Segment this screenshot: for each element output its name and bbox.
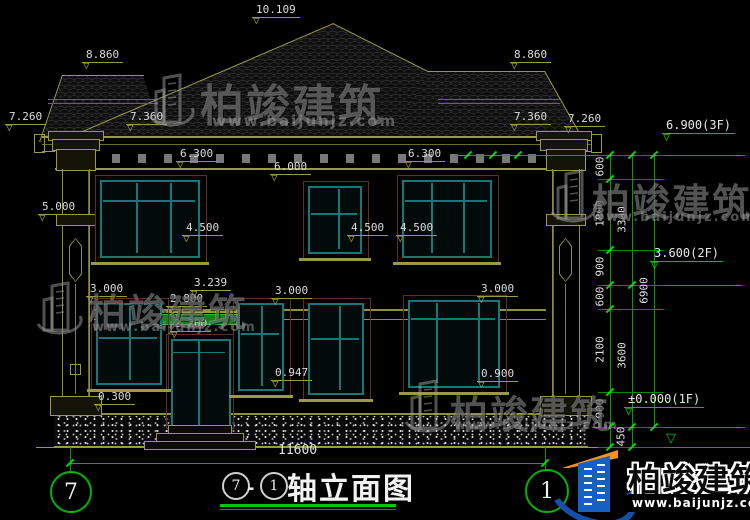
chain-dimension: 900 [594, 387, 607, 431]
level-label: 3.600(2F)▽ [650, 246, 723, 262]
brand-logo: 柏竣建筑 www.baijunjz.com [540, 448, 750, 520]
elevation-triangle-icon: ▽ [87, 294, 94, 305]
elevation-triangle-icon: ▽ [127, 122, 134, 133]
window-2f-right-transom [405, 200, 487, 202]
title-axis-bubble-from: 7 [222, 472, 250, 500]
left-wing-fascia-2 [48, 103, 158, 104]
elevation-marker: 0.947▽ [271, 366, 312, 381]
elevation-triangle-icon: ▽ [272, 296, 279, 307]
eave-end-left [34, 134, 45, 153]
elevation-marker: 3.000▽ [477, 282, 518, 297]
door-center-mullion [198, 341, 200, 425]
window-2f-left-sill [91, 262, 209, 265]
window-1f-1-rail [99, 337, 157, 339]
elevation-marker: 3.000▽ [271, 284, 312, 299]
window-2f-center-rail [311, 213, 357, 215]
pilaster-left-downspout [75, 284, 76, 394]
elevation-triangle-icon: ▽ [478, 294, 485, 305]
elevation-marker: 6.300▽ [404, 147, 445, 162]
window-1f-2-sill [229, 395, 293, 398]
elevation-triangle-icon: ▽ [511, 60, 518, 71]
elevation-marker: 0.900▽ [477, 367, 518, 382]
elevation-triangle-icon: ▽ [271, 172, 278, 183]
elevation-triangle-icon: ▽ [95, 402, 102, 413]
pilaster-left-band [56, 214, 96, 226]
elevation-triangle-icon: ▽ [478, 379, 485, 390]
elevation-triangle-icon: ▽ [565, 124, 572, 135]
pilaster-left-ornament [69, 238, 82, 282]
chain-dimension: 3300 [616, 198, 629, 242]
roof-ridge-right [428, 71, 545, 72]
window-2f-right-sill [393, 262, 501, 265]
chain-dimension: 6900 [638, 269, 651, 313]
pilaster-right-shaft [552, 169, 580, 399]
elevation-marker: 7.360▽ [126, 110, 167, 125]
window-2f-right [402, 180, 492, 258]
window-2f-left-transom [103, 200, 195, 202]
elevation-marker: 2.200▽ [170, 317, 211, 332]
pilaster-left-spout-box [70, 364, 81, 375]
pilaster-right-downspout [565, 284, 566, 394]
chain-line-1 [610, 155, 611, 447]
window-1f-3-rail [311, 338, 359, 340]
right-wing-fascia [438, 99, 560, 100]
pilaster-right-band [546, 214, 586, 226]
window-1f-4-mullion [436, 303, 438, 383]
window-1f-3-mullion [339, 306, 341, 390]
elevation-marker: 4.500▽ [182, 221, 223, 236]
elevation-triangle-icon: ▽ [183, 233, 190, 244]
elevation-marker: 8.860▽ [82, 48, 123, 63]
entry-step-3 [144, 441, 256, 450]
level-triangle-icon: ▽ [663, 132, 670, 143]
chain-dimension: 1800 [594, 192, 607, 236]
elevation-marker: 7.360▽ [510, 110, 551, 125]
elevation-triangle-icon: ▽ [348, 233, 355, 244]
logo-url-bar: www.baijunjz.com [628, 494, 750, 512]
window-2f-left-mullion [136, 183, 138, 253]
elevation-marker: 4.500▽ [347, 221, 388, 236]
elevation-marker: 6.000▽ [270, 160, 311, 175]
level-value: 6.900(3F) [662, 118, 735, 134]
ground-line [36, 447, 608, 448]
elevation-triangle-icon: ▽ [83, 60, 90, 71]
elevation-drawing-canvas: ▽ 11600 7 1 7 - 1 轴立面图 柏竣建筑 www.baijunjz… [0, 0, 750, 520]
pilaster-right-base [540, 396, 592, 416]
elevation-marker: 6.300▽ [176, 147, 217, 162]
window-2f-center-mullion [338, 189, 340, 249]
window-1f-3 [308, 303, 364, 395]
elevation-triangle-icon: ▽ [253, 15, 260, 26]
level-label: 6.900(3F)▽ [662, 118, 735, 134]
elevation-triangle-icon: ▽ [177, 159, 184, 170]
elevation-marker: 5.000▽ [38, 200, 79, 215]
window-2f-center-sill [299, 258, 371, 261]
title-axis-bubble-to: 1 [260, 472, 288, 500]
axis-bubble-left: 7 [50, 471, 92, 513]
elevation-marker: 3.000▽ [86, 282, 127, 297]
title-underline-thin [220, 509, 396, 510]
logo-building-icon [578, 456, 610, 512]
chain-dimension: 3600 [616, 334, 629, 378]
elevation-triangle-icon: ▽ [397, 233, 404, 244]
elevation-marker: 2.800▽ [166, 292, 207, 307]
elevation-triangle-icon: ▽ [405, 159, 412, 170]
window-2f-left-mullion [170, 183, 172, 253]
elevation-marker: 8.860▽ [510, 48, 551, 63]
ground-elev-triangle: ▽ [666, 432, 676, 446]
level-triangle-icon: ▽ [651, 260, 658, 271]
right-wing-fascia-2 [438, 103, 560, 104]
elevation-triangle-icon: ▽ [39, 212, 46, 223]
window-2f-right-mullion [463, 183, 465, 253]
window-1f-4-sill [399, 392, 509, 395]
pilaster-right-capital-3 [546, 149, 586, 171]
left-wing-fascia [48, 99, 158, 100]
title-dash: - [247, 478, 254, 499]
elevation-marker: 7.260▽ [564, 112, 605, 127]
elevation-triangle-icon: ▽ [272, 378, 279, 389]
elevation-marker: 10.109▽ [252, 3, 300, 18]
chain-dimension: 600 [594, 275, 607, 319]
pilaster-left-capital-3 [56, 149, 96, 171]
pilaster-right-ornament [559, 238, 572, 282]
foundation-hatch [54, 416, 588, 448]
elevation-triangle-icon: ▽ [171, 329, 178, 340]
chain-dimension: 2100 [594, 328, 607, 372]
title-underline-thick [220, 504, 396, 507]
elevation-triangle-icon: ▽ [511, 122, 518, 133]
level-value: ±0.000(1F) [624, 392, 704, 408]
chain-line-3 [654, 155, 655, 427]
plinth-line [50, 413, 588, 415]
window-2f-right-mullion [431, 183, 433, 253]
door-panel-line [173, 352, 225, 353]
window-1f-2-rail [241, 333, 279, 335]
window-1f-3-sill [299, 399, 373, 402]
chain-dimension: 600 [594, 145, 607, 189]
elevation-triangle-icon: ▽ [6, 122, 13, 133]
window-1f-1-mullion [129, 306, 131, 380]
elevation-marker: 4.500▽ [396, 221, 437, 236]
drawing-title: 轴立面图 [287, 464, 415, 508]
overall-width-dim: 11600 [278, 443, 317, 458]
roof-ridge-left [62, 75, 144, 76]
level-label: ±0.000(1F)▽ [624, 392, 704, 408]
window-1f-4-transom [411, 318, 495, 320]
elevation-marker: 7.260▽ [5, 110, 46, 125]
elevation-marker: 0.300▽ [94, 390, 135, 405]
elevation-marker: 3.239▽ [190, 276, 231, 291]
window-2f-left [100, 180, 200, 258]
level-value: 3.600(2F) [650, 246, 723, 262]
elevation-triangle-icon: ▽ [167, 304, 174, 315]
window-1f-2-mullion [261, 306, 263, 386]
